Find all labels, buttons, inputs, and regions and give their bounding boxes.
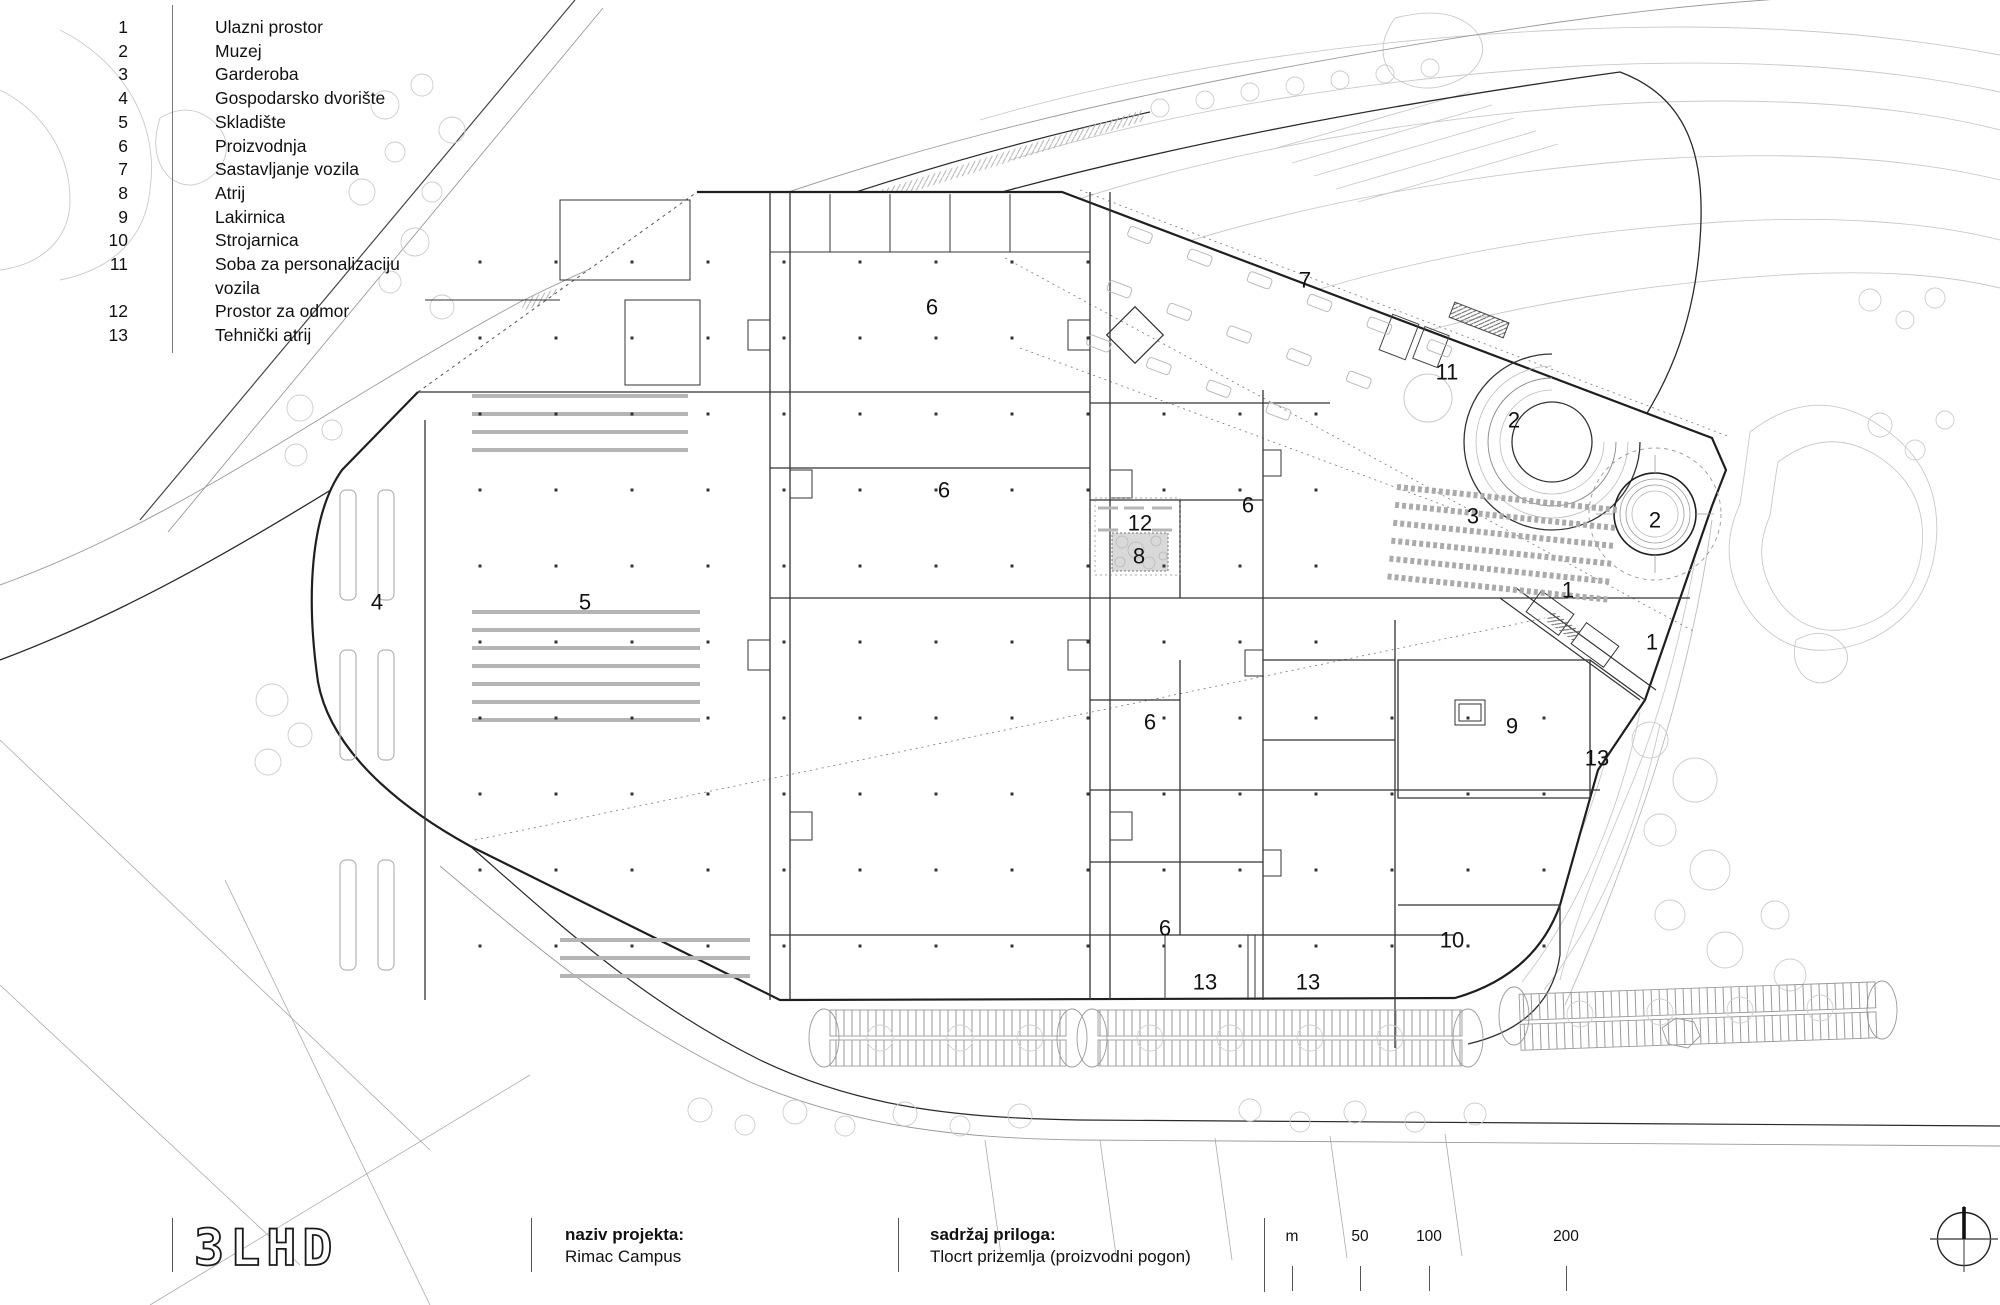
legend-item-number: 7: [75, 158, 128, 182]
project-name-label: naziv projekta:: [565, 1224, 684, 1246]
legend-item-number: 12: [75, 300, 128, 324]
room-number-label: 13: [1296, 970, 1320, 995]
room-number-label: 13: [1193, 970, 1217, 995]
project-name-block: naziv projekta: Rimac Campus: [565, 1224, 684, 1268]
legend-item-label: Skladište: [215, 111, 440, 135]
project-name-value: Rimac Campus: [565, 1246, 684, 1268]
scale-tick: [1292, 1266, 1293, 1291]
room-number-label: 10: [1440, 928, 1464, 953]
legend-row: 2Muzej: [75, 40, 440, 64]
legend-item-label: Soba za personalizaciju vozila: [215, 253, 440, 300]
legend-item-number: 6: [75, 135, 128, 159]
legend-row: 6Proizvodnja: [75, 135, 440, 159]
legend-item-number: 1: [75, 16, 128, 40]
legend-item-number: 8: [75, 182, 128, 206]
room-number-label: 1: [1562, 578, 1574, 603]
room-number-label: 6: [1144, 710, 1156, 735]
room-number-label: 8: [1133, 544, 1145, 569]
legend-row: 10Strojarnica: [75, 229, 440, 253]
drawing-content-value: Tlocrt prizemlja (proizvodni pogon): [930, 1246, 1191, 1268]
scale-tick: [1566, 1266, 1567, 1291]
legend-row: 13Tehnički atrij: [75, 324, 440, 348]
room-number-label: 11: [1436, 360, 1459, 385]
room-number-label: 6: [1159, 916, 1171, 941]
room-number-label: 6: [1242, 493, 1254, 518]
scale-mark-label: 200: [1553, 1228, 1579, 1246]
legend-item-label: Garderoba: [215, 63, 440, 87]
drawing-content-block: sadržaj priloga: Tlocrt prizemlja (proiz…: [930, 1224, 1191, 1268]
legend-row: 1Ulazni prostor: [75, 16, 440, 40]
north-compass-icon: [1930, 1206, 1998, 1272]
room-number-label: 5: [579, 590, 591, 615]
room-number-label: 4: [371, 590, 383, 615]
legend-item-number: 11: [75, 253, 128, 300]
legend-item-number: 10: [75, 229, 128, 253]
room-number-label: 12: [1128, 511, 1152, 536]
titleblock-divider: [531, 1218, 532, 1272]
room-number-label: 1: [1646, 630, 1658, 655]
drawing-content-label: sadržaj priloga:: [930, 1224, 1191, 1246]
legend-item-label: Sastavljanje vozila: [215, 158, 440, 182]
legend-row: 8Atrij: [75, 182, 440, 206]
legend: 1Ulazni prostor2Muzej3Garderoba4Gospodar…: [75, 16, 440, 348]
room-number-label: 13: [1585, 746, 1609, 771]
legend-item-number: 13: [75, 324, 128, 348]
scale-unit-label: m: [1286, 1228, 1299, 1246]
room-number-label: 3: [1467, 504, 1479, 529]
legend-rows: 1Ulazni prostor2Muzej3Garderoba4Gospodar…: [75, 16, 440, 348]
legend-row: 11Soba za personalizaciju vozila: [75, 253, 440, 300]
legend-item-label: Muzej: [215, 40, 440, 64]
legend-row: 4Gospodarsko dvorište: [75, 87, 440, 111]
legend-item-number: 5: [75, 111, 128, 135]
building-footprint: [312, 192, 1726, 1000]
room-number-label: 9: [1506, 714, 1518, 739]
scale-tick: [1360, 1266, 1361, 1291]
scale-mark-label: 50: [1351, 1228, 1368, 1246]
room-number-label: 6: [938, 478, 950, 503]
legend-item-label: Atrij: [215, 182, 440, 206]
room-number-label: 2: [1649, 508, 1661, 533]
legend-item-label: Tehnički atrij: [215, 324, 440, 348]
legend-item-label: Ulazni prostor: [215, 16, 440, 40]
legend-item-label: Gospodarsko dvorište: [215, 87, 440, 111]
legend-row: 5Skladište: [75, 111, 440, 135]
scale-tick: [1429, 1266, 1430, 1291]
architect-logo: 3LHD: [192, 1222, 392, 1281]
legend-item-number: 2: [75, 40, 128, 64]
titleblock-divider: [172, 1218, 173, 1272]
room-number-label: 2: [1508, 408, 1520, 433]
legend-item-label: Strojarnica: [215, 229, 440, 253]
legend-item-number: 3: [75, 63, 128, 87]
logo-text: 3LHD: [194, 1222, 338, 1276]
legend-row: 7Sastavljanje vozila: [75, 158, 440, 182]
legend-item-label: Lakirnica: [215, 206, 440, 230]
legend-row: 3Garderoba: [75, 63, 440, 87]
titleblock-divider: [1264, 1218, 1265, 1292]
legend-item-label: Prostor za odmor: [215, 300, 440, 324]
scale-mark-label: 100: [1416, 1228, 1442, 1246]
room-number-label: 7: [1299, 268, 1311, 293]
legend-item-number: 9: [75, 206, 128, 230]
legend-item-label: Proizvodnja: [215, 135, 440, 159]
legend-row: 12Prostor za odmor: [75, 300, 440, 324]
titleblock-divider: [898, 1218, 899, 1272]
room-number-label: 6: [926, 295, 938, 320]
legend-item-number: 4: [75, 87, 128, 111]
legend-row: 9Lakirnica: [75, 206, 440, 230]
architectural-site-plan-sheet: 761126612328114569136101313 1Ulazni pros…: [0, 0, 2000, 1305]
